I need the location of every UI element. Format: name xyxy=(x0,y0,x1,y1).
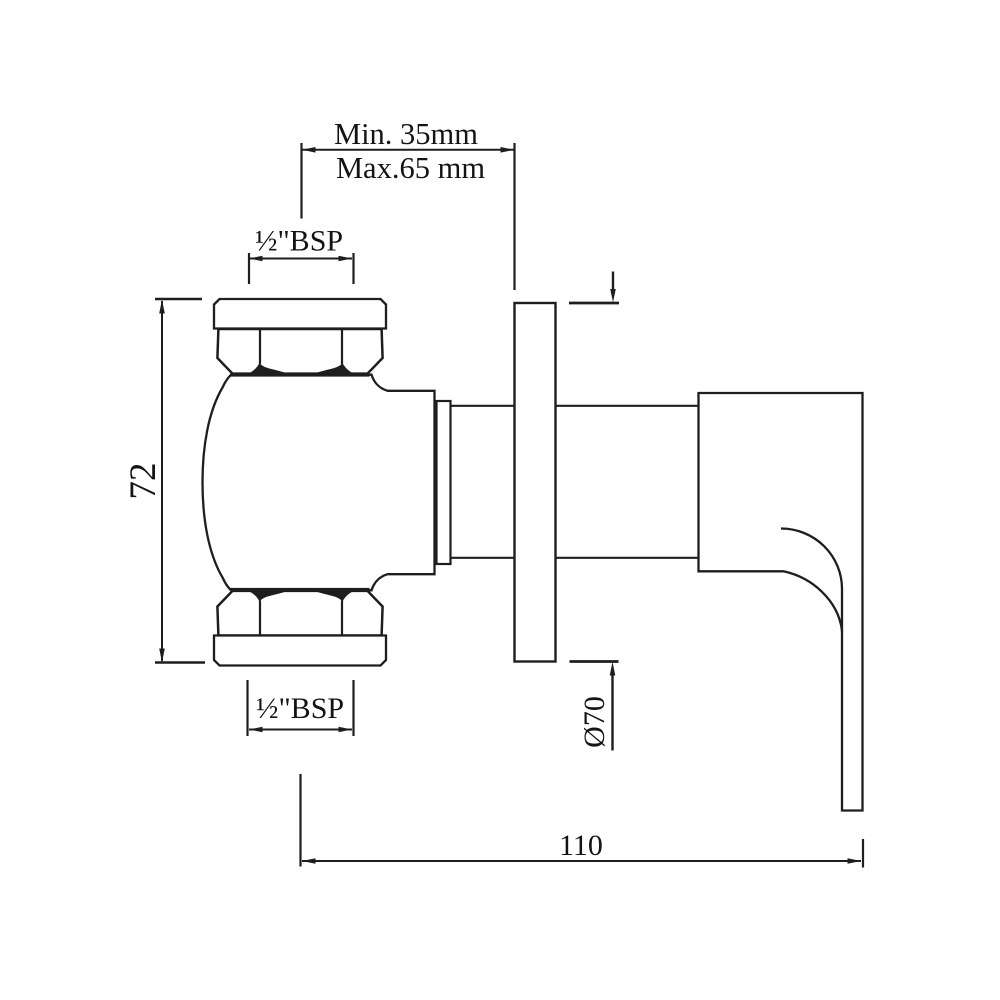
svg-text:Min. 35mm: Min. 35mm xyxy=(334,117,478,151)
svg-text:110: 110 xyxy=(559,829,603,862)
svg-text:Max.65 mm: Max.65 mm xyxy=(336,151,485,185)
svg-text:½"BSP: ½"BSP xyxy=(255,225,343,258)
svg-text:72: 72 xyxy=(123,463,164,500)
svg-text:Ø70: Ø70 xyxy=(578,696,611,748)
svg-text:½"BSP: ½"BSP xyxy=(256,692,344,725)
